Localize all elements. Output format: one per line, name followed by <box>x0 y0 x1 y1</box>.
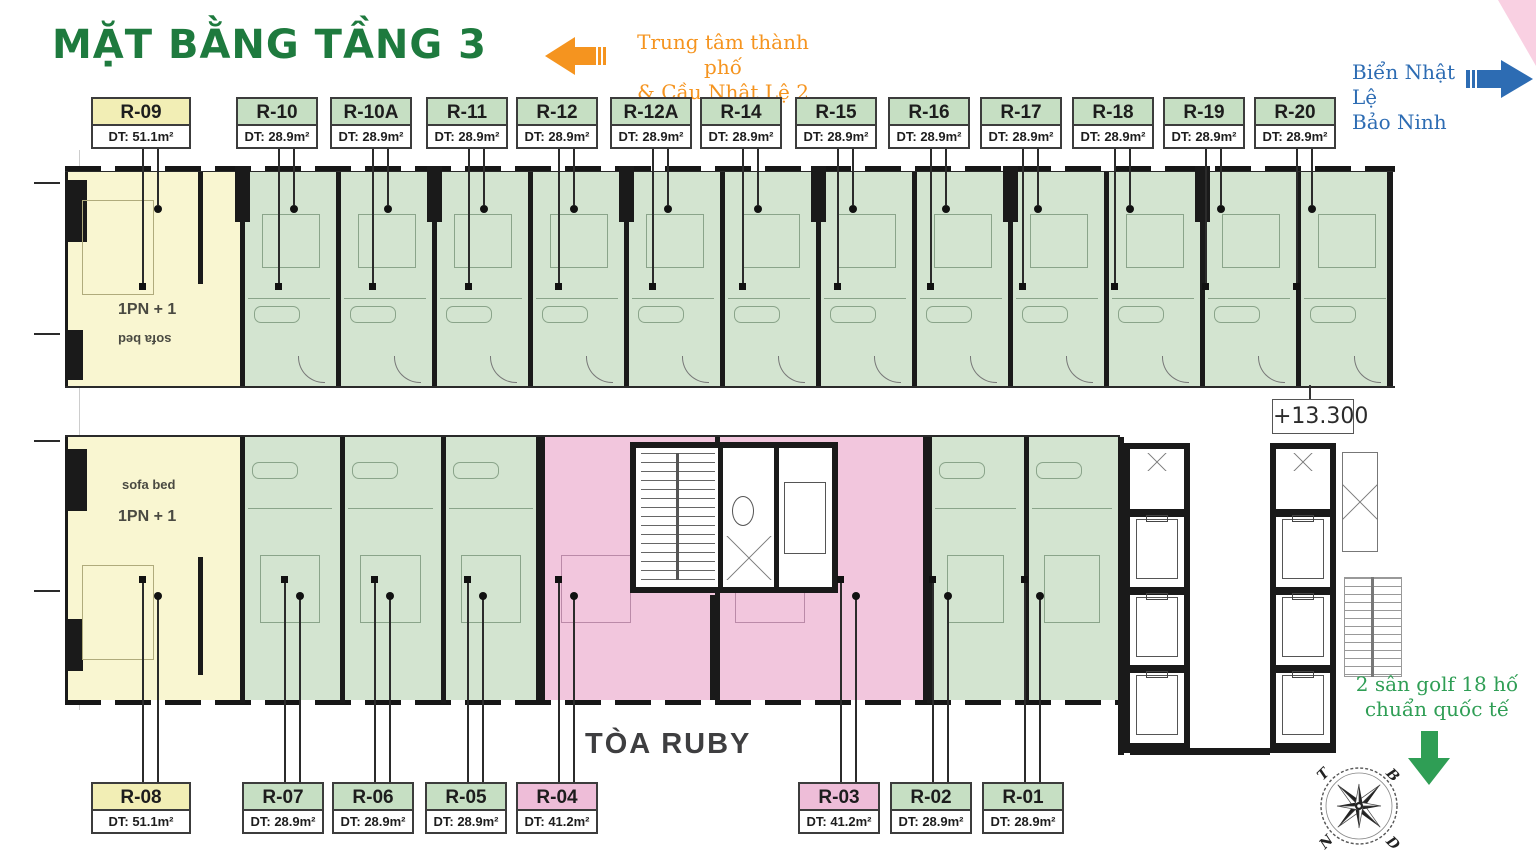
sofa-bed-label-R-09: sofa bed <box>118 332 171 347</box>
leader-square <box>1019 283 1026 290</box>
vent-hatch <box>1280 453 1326 471</box>
unit-label-area: DT: 28.9m² <box>330 126 412 149</box>
direction-city: Trung tâm thành phố & Cầu Nhật Lệ 2 <box>616 30 830 105</box>
leader-line <box>1205 149 1207 283</box>
unit-type-label-R-09: 1PN + 1 <box>118 301 176 319</box>
unit-label-id: R-10 <box>236 97 318 126</box>
bed-outline <box>1126 214 1184 268</box>
leader-line <box>1039 598 1041 782</box>
leader-dot <box>849 205 857 213</box>
leader-square <box>739 283 746 290</box>
unit-label-R-03: R-03DT: 41.2m² <box>798 782 880 834</box>
elevator-door <box>1146 515 1168 522</box>
leader-line <box>293 149 295 205</box>
building-name: TÒA RUBY <box>585 728 775 761</box>
column <box>811 166 826 222</box>
leader-line <box>482 598 484 782</box>
bed-outline <box>947 555 1004 623</box>
column <box>65 619 83 671</box>
dimension-tick <box>34 590 60 592</box>
elevator-bank-left <box>1124 443 1190 753</box>
partition-wall <box>198 172 203 284</box>
bathtub-outline <box>1022 306 1068 323</box>
column <box>65 330 83 380</box>
direction-golf-line2: chuẩn quốc tế <box>1348 697 1526 722</box>
beach-arrow-slit <box>1475 70 1477 88</box>
unit-label-id: R-16 <box>888 97 970 126</box>
elevator-car <box>1136 597 1178 657</box>
core-wall <box>718 448 723 587</box>
unit-label-area: DT: 28.9m² <box>425 811 507 834</box>
leader-dot <box>944 592 952 600</box>
unit-label-area: DT: 28.9m² <box>795 126 877 149</box>
leader-line <box>757 149 759 205</box>
leader-line <box>278 149 280 283</box>
unit-label-area: DT: 28.9m² <box>700 126 782 149</box>
leader-line <box>945 149 947 205</box>
unit-label-area: DT: 51.1m² <box>91 811 191 834</box>
leader-square <box>464 576 471 583</box>
party-wall <box>1104 172 1109 386</box>
leader-line <box>1296 149 1298 283</box>
unit-label-area: DT: 28.9m² <box>332 811 414 834</box>
bed-outline <box>260 555 320 623</box>
service-room <box>784 482 826 554</box>
unit-label-area: DT: 28.9m² <box>1163 126 1245 149</box>
party-wall <box>336 172 341 386</box>
unit-label-R-18: R-18DT: 28.9m² <box>1072 97 1154 149</box>
bed-outline <box>1030 214 1088 268</box>
leader-line <box>558 582 560 782</box>
bed-outline <box>742 214 800 268</box>
leader-square <box>275 283 282 290</box>
bathroom-divider <box>1112 298 1194 299</box>
stair-rail <box>1371 577 1374 677</box>
unit-label-id: R-18 <box>1072 97 1154 126</box>
leader-line <box>372 149 374 283</box>
bathroom-divider <box>1032 508 1112 509</box>
leader-square <box>1021 576 1028 583</box>
leader-line <box>374 582 376 782</box>
leader-dot <box>290 205 298 213</box>
bathtub-outline <box>352 462 398 479</box>
leader-square <box>139 283 146 290</box>
party-wall <box>240 437 245 703</box>
elevator-door <box>1292 671 1314 678</box>
leader-dot <box>296 592 304 600</box>
unit-label-id: R-02 <box>890 782 972 811</box>
leader-line <box>1024 582 1026 782</box>
direction-golf: 2 sân golf 18 hố chuẩn quốc tế <box>1348 672 1526 722</box>
unit-label-id: R-09 <box>91 97 191 126</box>
leader-line <box>1022 149 1024 283</box>
unit-label-id: R-08 <box>91 782 191 811</box>
party-wall <box>720 172 725 386</box>
leader-line <box>467 582 469 782</box>
bathroom-divider <box>449 508 533 509</box>
unit-label-id: R-12A <box>610 97 692 126</box>
column <box>1003 166 1018 222</box>
party-wall <box>528 172 533 386</box>
wc-fixture <box>732 496 754 526</box>
leader-square <box>465 283 472 290</box>
bathroom-divider <box>1208 298 1290 299</box>
unit-label-R-05: R-05DT: 28.9m² <box>425 782 507 834</box>
bathtub-outline <box>542 306 588 323</box>
bathtub-outline <box>350 306 396 323</box>
bed-outline <box>358 214 416 268</box>
bed-outline <box>1222 214 1280 268</box>
elevator-door <box>1146 593 1168 600</box>
bathtub-outline <box>254 306 300 323</box>
unit-label-area: DT: 28.9m² <box>1072 126 1154 149</box>
city-arrow-left-icon <box>545 37 575 75</box>
bed-outline <box>1044 555 1100 623</box>
leader-line <box>157 149 159 205</box>
bathroom-divider <box>632 298 714 299</box>
leader-line <box>652 149 654 283</box>
beach-arrow-slit <box>1470 70 1472 88</box>
central-core <box>630 442 838 593</box>
party-wall <box>340 437 345 703</box>
bathtub-outline <box>1118 306 1164 323</box>
bathtub-outline <box>1036 462 1082 479</box>
bathroom-divider <box>920 298 1002 299</box>
elevator-car <box>1136 519 1178 579</box>
unit-label-id: R-10A <box>330 97 412 126</box>
bed-outline <box>934 214 992 268</box>
elevator-car <box>1282 597 1324 657</box>
bathroom-divider <box>248 298 330 299</box>
wall <box>536 437 545 703</box>
leader-dot <box>754 205 762 213</box>
direction-city-line1: Trung tâm thành phố <box>616 30 830 80</box>
unit-label-id: R-03 <box>798 782 880 811</box>
leader-square <box>371 576 378 583</box>
leader-line <box>573 149 575 205</box>
elevator-car <box>1282 675 1324 735</box>
floorplan-canvas: MẶT BẰNG TẦNG 3 Trung tâm thành phố & Cầ… <box>0 0 1536 864</box>
unit-label-R-07: R-07DT: 28.9m² <box>242 782 324 834</box>
leader-line <box>930 149 932 283</box>
bathtub-outline <box>734 306 780 323</box>
stair-rail <box>676 453 679 580</box>
elevator-car <box>1136 675 1178 735</box>
bathroom-divider <box>248 508 332 509</box>
unit-label-R-04: R-04DT: 41.2m² <box>516 782 598 834</box>
unit-label-area: DT: 28.9m² <box>890 811 972 834</box>
partition-wall <box>198 557 203 675</box>
bathroom-divider <box>728 298 810 299</box>
shaft-hatch <box>1342 452 1378 552</box>
unit-label-id: R-12 <box>516 97 598 126</box>
leader-dot <box>154 205 162 213</box>
leader-dot <box>1217 205 1225 213</box>
leader-square <box>1293 283 1300 290</box>
bathtub-outline <box>830 306 876 323</box>
leader-dot <box>1034 205 1042 213</box>
unit-label-R-11: R-11DT: 28.9m² <box>426 97 508 149</box>
leader-dot <box>1036 592 1044 600</box>
leader-line <box>1311 149 1313 205</box>
window-band-bottom <box>65 700 1120 705</box>
bathroom-divider <box>344 298 426 299</box>
unit-label-area: DT: 41.2m² <box>516 811 598 834</box>
party-wall <box>441 437 446 703</box>
dimension-tick <box>34 333 60 335</box>
unit-label-area: DT: 28.9m² <box>888 126 970 149</box>
leader-line <box>742 149 744 283</box>
compass-east: D <box>1382 833 1403 854</box>
leader-line <box>1129 149 1131 205</box>
elevator-bank-right <box>1270 443 1336 753</box>
direction-beach-line2: Bảo Ninh <box>1352 110 1472 135</box>
leader-line <box>468 149 470 283</box>
bed-outline <box>461 555 521 623</box>
column <box>1195 166 1210 222</box>
unit-label-area: DT: 28.9m² <box>1254 126 1336 149</box>
bathroom-divider <box>1016 298 1098 299</box>
unit-label-id: R-05 <box>425 782 507 811</box>
unit-label-area: DT: 41.2m² <box>798 811 880 834</box>
unit-label-area: DT: 28.9m² <box>426 126 508 149</box>
leader-dot <box>1126 205 1134 213</box>
leader-line <box>932 582 934 782</box>
leader-line <box>947 598 949 782</box>
leader-dot <box>480 205 488 213</box>
unit-label-R-12A: R-12ADT: 28.9m² <box>610 97 692 149</box>
unit-label-R-09: R-09DT: 51.1m² <box>91 97 191 149</box>
direction-golf-line1: 2 sân golf 18 hố <box>1348 672 1526 697</box>
slab <box>1130 743 1184 751</box>
unit-label-id: R-04 <box>516 782 598 811</box>
bathroom-divider <box>824 298 906 299</box>
leader-dot <box>852 592 860 600</box>
unit-label-R-01: R-01DT: 28.9m² <box>982 782 1064 834</box>
leader-square <box>649 283 656 290</box>
sofa-bed-label-R-08: sofa bed <box>122 477 175 492</box>
golf-arrow-stem <box>1421 731 1438 759</box>
leader-square <box>837 576 844 583</box>
bathroom-divider <box>440 298 522 299</box>
bathtub-outline <box>1214 306 1260 323</box>
level-marker: +13.300 <box>1272 399 1354 434</box>
slab <box>1276 743 1330 751</box>
elevator-door <box>1292 515 1314 522</box>
unit-label-R-14: R-14DT: 28.9m² <box>700 97 782 149</box>
unit-label-id: R-19 <box>1163 97 1245 126</box>
unit-label-R-06: R-06DT: 28.9m² <box>332 782 414 834</box>
unit-label-R-10: R-10DT: 28.9m² <box>236 97 318 149</box>
leader-line <box>667 149 669 205</box>
leader-square <box>369 283 376 290</box>
column <box>619 166 634 222</box>
leader-line <box>1037 149 1039 205</box>
unit-label-R-17: R-17DT: 28.9m² <box>980 97 1062 149</box>
golf-arrow-down-icon <box>1408 758 1450 785</box>
unit-label-area: DT: 28.9m² <box>236 126 318 149</box>
bathtub-outline <box>446 306 492 323</box>
bed-outline <box>646 214 704 268</box>
bed-outline <box>454 214 512 268</box>
leader-dot <box>1308 205 1316 213</box>
leader-line <box>1220 149 1222 205</box>
leader-square <box>555 283 562 290</box>
leader-line <box>142 149 144 283</box>
direction-beach: Biển Nhật Lệ Bảo Ninh <box>1352 60 1472 135</box>
elevator-door <box>1146 671 1168 678</box>
unit-label-area: DT: 51.1m² <box>91 126 191 149</box>
unit-label-area: DT: 28.9m² <box>980 126 1062 149</box>
direction-beach-line1: Biển Nhật Lệ <box>1352 60 1472 110</box>
bathroom-divider <box>348 508 433 509</box>
leader-square <box>281 576 288 583</box>
compass-north: B <box>1382 765 1403 786</box>
unit-label-R-15: R-15DT: 28.9m² <box>795 97 877 149</box>
leader-line <box>284 582 286 782</box>
leader-dot <box>384 205 392 213</box>
party-wall <box>912 172 917 386</box>
bathtub-outline <box>252 462 298 479</box>
shaft-hatch <box>726 536 772 580</box>
unit-label-R-08: R-08DT: 51.1m² <box>91 782 191 834</box>
bathroom-divider <box>536 298 618 299</box>
unit-label-R-12: R-12DT: 28.9m² <box>516 97 598 149</box>
leader-dot <box>154 592 162 600</box>
leader-dot <box>942 205 950 213</box>
bathtub-outline <box>453 462 499 479</box>
core-wall <box>774 448 779 587</box>
unit-label-area: DT: 28.9m² <box>516 126 598 149</box>
elevator-car <box>1282 519 1324 579</box>
leader-dot <box>664 205 672 213</box>
unit-label-area: DT: 28.9m² <box>610 126 692 149</box>
wall <box>1387 172 1393 386</box>
leader-square <box>1111 283 1118 290</box>
bathtub-outline <box>1310 306 1356 323</box>
bathtub-outline <box>638 306 684 323</box>
bathroom-divider <box>1304 298 1386 299</box>
leader-line <box>483 149 485 205</box>
vent-hatch <box>1134 453 1180 471</box>
bed-outline <box>838 214 896 268</box>
leader-square <box>927 283 934 290</box>
unit-label-area: DT: 28.9m² <box>982 811 1064 834</box>
leader-square <box>929 576 936 583</box>
leader-dot <box>570 592 578 600</box>
unit-label-area: DT: 28.9m² <box>242 811 324 834</box>
unit-label-R-19: R-19DT: 28.9m² <box>1163 97 1245 149</box>
dimension-tick <box>34 182 60 184</box>
leader-square <box>139 576 146 583</box>
unit-label-R-02: R-02DT: 28.9m² <box>890 782 972 834</box>
unit-label-id: R-07 <box>242 782 324 811</box>
column <box>427 166 442 222</box>
unit-label-id: R-20 <box>1254 97 1336 126</box>
level-marker-tick <box>1309 385 1311 399</box>
leader-square <box>555 576 562 583</box>
bed-outline <box>561 555 631 623</box>
leader-dot <box>570 205 578 213</box>
leader-line <box>387 149 389 205</box>
unit-label-id: R-01 <box>982 782 1064 811</box>
leader-line <box>558 149 560 283</box>
leader-line <box>1114 149 1116 283</box>
page-title: MẶT BẰNG TẦNG 3 <box>52 22 487 68</box>
bathroom-divider <box>935 508 1016 509</box>
leader-line <box>389 598 391 782</box>
leader-line <box>299 598 301 782</box>
leader-line <box>855 598 857 782</box>
compass-rose-icon: T B N D <box>1310 757 1408 855</box>
leader-square <box>834 283 841 290</box>
leader-dot <box>479 592 487 600</box>
leader-line <box>852 149 854 205</box>
leader-line <box>837 149 839 283</box>
unit-label-id: R-14 <box>700 97 782 126</box>
elevator-door <box>1292 593 1314 600</box>
column <box>235 166 250 222</box>
unit-label-R-16: R-16DT: 28.9m² <box>888 97 970 149</box>
leader-square <box>1202 283 1209 290</box>
bed-outline <box>1318 214 1376 268</box>
leader-line <box>573 598 575 782</box>
unit-label-R-20: R-20DT: 28.9m² <box>1254 97 1336 149</box>
bathtub-outline <box>939 462 985 479</box>
unit-label-id: R-06 <box>332 782 414 811</box>
dimension-tick <box>34 440 60 442</box>
leader-line <box>840 582 842 782</box>
unit-label-R-10A: R-10ADT: 28.9m² <box>330 97 412 149</box>
leader-line <box>142 582 144 782</box>
unit-label-id: R-11 <box>426 97 508 126</box>
leader-line <box>157 598 159 782</box>
bathtub-outline <box>926 306 972 323</box>
unit-label-id: R-17 <box>980 97 1062 126</box>
leader-dot <box>386 592 394 600</box>
unit-label-id: R-15 <box>795 97 877 126</box>
bed-outline <box>262 214 320 268</box>
city-arrow-slit <box>596 47 598 65</box>
corner-decoration <box>1498 0 1536 66</box>
column <box>65 449 87 511</box>
city-arrow-slit <box>601 47 603 65</box>
unit-type-label-R-08: 1PN + 1 <box>118 508 176 526</box>
